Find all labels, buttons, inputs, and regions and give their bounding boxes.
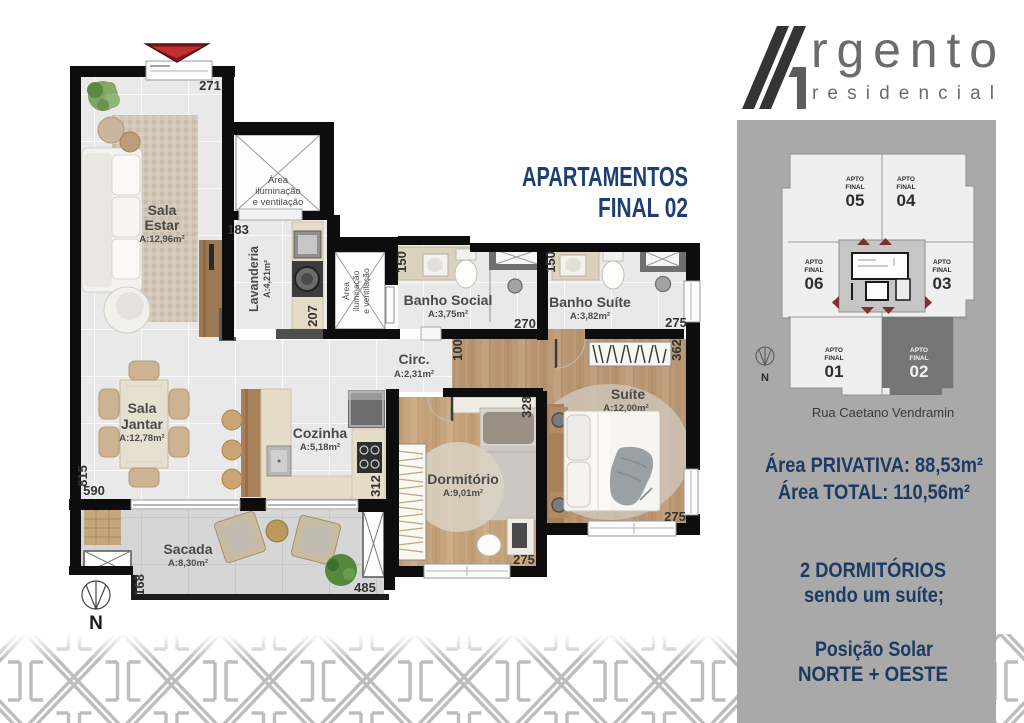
svg-text:270: 270	[514, 316, 536, 331]
svg-text:NORTE + OESTE: NORTE + OESTE	[798, 663, 948, 686]
svg-text:A:12,78m²: A:12,78m²	[119, 433, 164, 444]
svg-text:Área TOTAL: 110,56m²: Área TOTAL: 110,56m²	[778, 481, 970, 504]
svg-text:Sala: Sala	[148, 202, 177, 218]
svg-text:Sala: Sala	[128, 400, 157, 416]
svg-text:150: 150	[394, 251, 409, 273]
svg-text:100: 100	[450, 339, 465, 361]
svg-text:FINAL: FINAL	[804, 267, 823, 274]
svg-text:Jantar: Jantar	[121, 416, 164, 432]
svg-text:590: 590	[83, 483, 105, 498]
svg-text:e ventilação: e ventilação	[361, 268, 371, 314]
svg-text:2 DORMITÓRIOS: 2 DORMITÓRIOS	[800, 558, 946, 582]
svg-text:A:8,30m²: A:8,30m²	[168, 558, 208, 569]
svg-text:Banho Suíte: Banho Suíte	[549, 294, 631, 310]
svg-text:A:4,21m²: A:4,21m²	[262, 260, 272, 298]
svg-text:275: 275	[664, 509, 686, 524]
svg-text:275: 275	[665, 315, 687, 330]
svg-text:06: 06	[805, 274, 824, 293]
svg-text:APTO: APTO	[846, 176, 864, 183]
svg-text:02: 02	[910, 362, 929, 381]
svg-text:275: 275	[513, 552, 535, 567]
svg-text:05: 05	[846, 191, 865, 210]
svg-text:A:12,96m²: A:12,96m²	[139, 234, 184, 245]
svg-text:312: 312	[368, 475, 383, 497]
svg-text:362: 362	[669, 339, 684, 361]
svg-text:150: 150	[543, 251, 558, 273]
svg-text:A:3,82m²: A:3,82m²	[570, 311, 610, 322]
svg-text:Área: Área	[268, 175, 289, 186]
svg-text:328: 328	[519, 396, 534, 418]
svg-text:Lavanderia: Lavanderia	[247, 245, 261, 312]
svg-text:04: 04	[897, 191, 916, 210]
svg-text:Banho Social: Banho Social	[404, 292, 493, 308]
svg-text:Cozinha: Cozinha	[293, 425, 348, 441]
svg-text:A:9,01m²: A:9,01m²	[443, 488, 483, 499]
svg-text:FINAL: FINAL	[932, 267, 951, 274]
svg-text:A:5,18m²: A:5,18m²	[300, 442, 340, 453]
svg-text:APTO: APTO	[910, 347, 928, 354]
svg-text:APTO: APTO	[805, 259, 823, 266]
svg-text:iluminação: iluminação	[255, 186, 300, 197]
svg-text:N: N	[761, 372, 769, 384]
svg-text:Rua Caetano Vendramin: Rua Caetano Vendramin	[812, 405, 954, 420]
svg-text:271: 271	[199, 78, 221, 93]
svg-text:FINAL: FINAL	[824, 355, 843, 362]
svg-text:Posição Solar: Posição Solar	[815, 638, 933, 661]
svg-text:N: N	[89, 613, 103, 634]
svg-text:sendo um suíte;: sendo um suíte;	[804, 584, 944, 607]
svg-text:FINAL: FINAL	[896, 184, 915, 191]
svg-text:Circ.: Circ.	[398, 351, 429, 367]
svg-text:APARTAMENTOS: APARTAMENTOS	[522, 161, 688, 192]
svg-text:Área PRIVATIVA: 88,53m²: Área PRIVATIVA: 88,53m²	[765, 454, 983, 477]
svg-text:01: 01	[825, 362, 844, 381]
svg-text:e ventilação: e ventilação	[253, 197, 304, 208]
svg-text:485: 485	[354, 580, 376, 595]
svg-text:168: 168	[132, 574, 147, 596]
svg-text:Sacada: Sacada	[163, 541, 212, 557]
svg-text:03: 03	[933, 274, 952, 293]
svg-text:Dormitório: Dormitório	[427, 471, 499, 487]
svg-text:Suíte: Suíte	[611, 386, 645, 402]
svg-text:183: 183	[227, 222, 249, 237]
svg-text:A:12,00m²: A:12,00m²	[603, 403, 648, 414]
svg-text:FINAL 02: FINAL 02	[598, 192, 688, 223]
svg-text:iluminação: iluminação	[351, 270, 361, 311]
svg-text:FINAL: FINAL	[909, 355, 928, 362]
svg-text:A:2,31m²: A:2,31m²	[394, 369, 434, 380]
svg-text:APTO: APTO	[933, 259, 951, 266]
svg-text:APTO: APTO	[825, 347, 843, 354]
svg-text:Área: Área	[341, 282, 351, 300]
svg-text:APTO: APTO	[897, 176, 915, 183]
svg-text:207: 207	[305, 305, 320, 327]
svg-text:A:3,75m²: A:3,75m²	[428, 309, 468, 320]
svg-text:Estar: Estar	[144, 217, 180, 233]
svg-text:FINAL: FINAL	[845, 184, 864, 191]
